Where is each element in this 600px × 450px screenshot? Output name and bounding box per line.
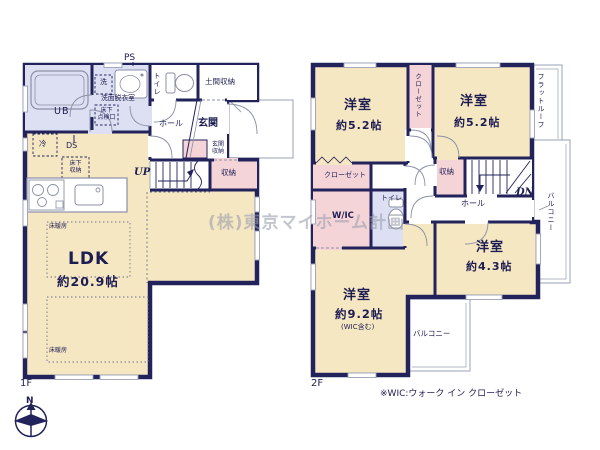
room-size-ldk: 約20.9帖 (57, 276, 119, 289)
room-label-toilet-1f: トイレ (153, 72, 160, 100)
room-label-washroom: 洗面脱衣室 (101, 95, 135, 102)
label-floor-heating-1: 床暖房 (49, 224, 67, 230)
room-label-closet-strip: クローゼット (414, 73, 421, 129)
entrance-porch (227, 100, 293, 158)
label-ds: DS (66, 142, 77, 150)
storage2-floor (435, 158, 465, 196)
room-label-bedroom-ne: 洋室 (460, 95, 488, 108)
underfloor-access-line1: 床下 (100, 107, 112, 114)
room-label-hall-2f: ホール (461, 200, 485, 208)
room-size-bedroom-nw: 約5.2帖 (336, 120, 383, 131)
room-label-bedroom-nw: 洋室 (344, 99, 372, 112)
room-note-bedroom-sw: (WIC含む) (341, 324, 374, 331)
room-size-bedroom-sw: 約9.2帖 (335, 309, 383, 321)
label-entrance-cabinet: 玄関 収納 (208, 141, 228, 155)
room-label-hall-1f: ホール (159, 120, 183, 128)
floor1-label: 1F (20, 379, 32, 389)
label-balcony-south: バルコニー (413, 330, 450, 338)
label-balcony-east: バルコニー (547, 192, 554, 236)
label-fridge: 冷 (39, 140, 47, 148)
label-washer: 洗 (100, 79, 107, 86)
label-floor-heating-2: 床暖房 (49, 348, 67, 354)
room-label-bedroom-sw: 洋室 (343, 289, 371, 302)
label-stairs-dn: DN (516, 188, 534, 198)
entrance-cabinet-line1: 玄関 (212, 141, 224, 148)
room-size-bedroom-ne: 約5.2帖 (454, 117, 501, 128)
compass-north-label: N (26, 397, 34, 406)
underfloor-storage-line2: 収納 (69, 167, 81, 174)
label-underfloor-storage: 床下 収納 (62, 160, 89, 174)
label-stairs-up: UP (134, 168, 150, 178)
room-label-closet-room: クローゼット (324, 172, 366, 179)
room-label-ub: UB (54, 107, 69, 117)
kitchen-counter (27, 178, 127, 212)
compass-icon (14, 402, 48, 437)
watermark: (株)東京マイホーム計画 (208, 215, 405, 232)
room-label-storage-2f: 収納 (439, 168, 454, 176)
room-label-storage-1f: 収納 (221, 169, 236, 177)
room-size-bedroom-se: 約4.3帖 (466, 261, 513, 272)
toilet1-icon (166, 73, 194, 93)
hall2-pocket-floor (371, 163, 405, 190)
entrance-cabinet-line2: 収納 (212, 148, 224, 155)
room-label-ldk: LDK (68, 251, 109, 268)
label-ps: PS (124, 54, 135, 63)
underfloor-access-line2: 点検口 (97, 114, 115, 121)
room-label-toilet-2f: トイレ (381, 195, 402, 202)
room-label-doma: 土間収納 (205, 78, 235, 86)
room-label-entrance: 玄関 (198, 119, 218, 129)
label-flat-roof: フラットルーフ (537, 73, 544, 141)
floorplan-canvas: PS UB 洗 洗面脱衣室 床下 点検口 トイレ 土間収納 ホール 玄関 玄関 … (0, 0, 600, 450)
footnote-wic: ※WIC:ウォーク イン クローゼット (380, 390, 522, 399)
floor2-label: 2F (311, 379, 323, 389)
room-label-bedroom-se: 洋室 (476, 241, 504, 254)
label-underfloor-access: 床下 点検口 (95, 107, 118, 121)
underfloor-storage-line1: 床下 (69, 160, 81, 167)
